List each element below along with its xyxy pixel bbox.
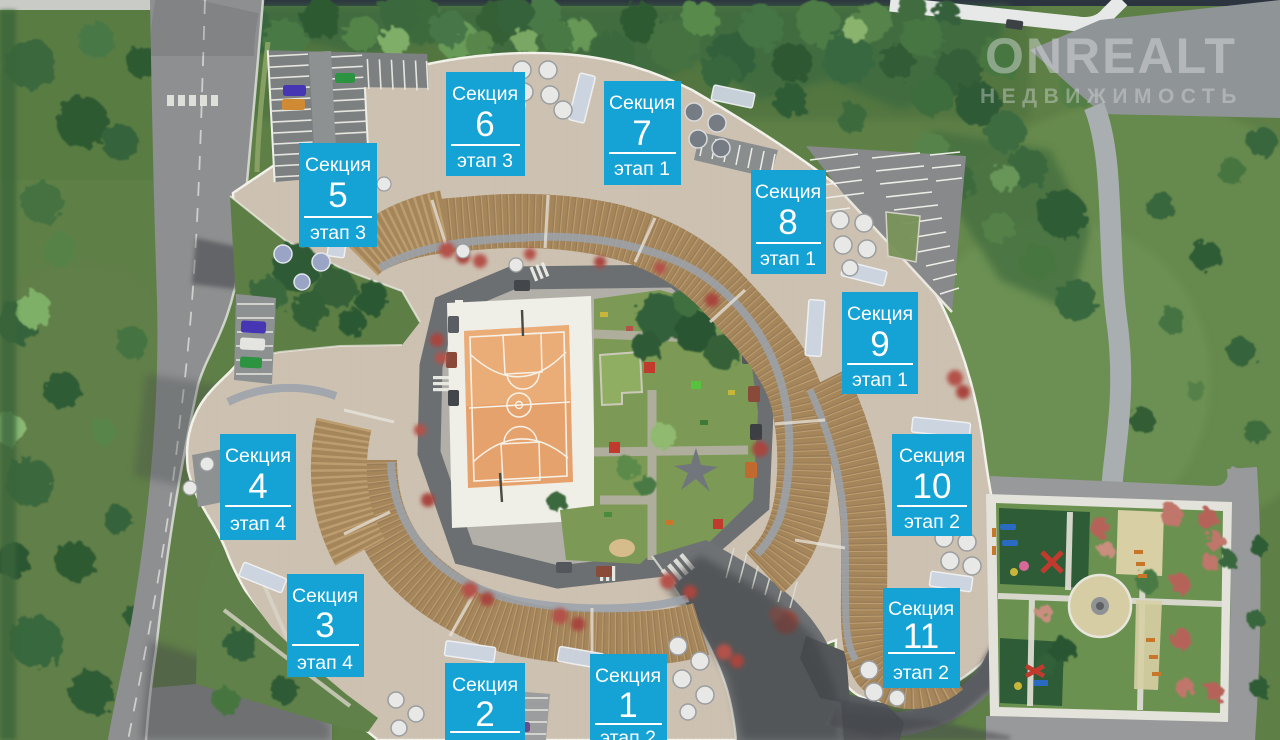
svg-text:этап 2: этап 2 [600, 727, 656, 740]
svg-text:НЕДВИЖИМОСТЬ: НЕДВИЖИМОСТЬ [980, 85, 1243, 108]
svg-text:11: 11 [903, 617, 939, 656]
svg-text:5: 5 [328, 176, 347, 215]
svg-text:Секция: Секция [847, 303, 913, 325]
svg-text:Секция: Секция [305, 154, 371, 176]
svg-text:Секция: Секция [452, 674, 518, 696]
svg-text:этап 4: этап 4 [297, 652, 353, 674]
svg-text:7: 7 [632, 114, 651, 153]
svg-text:этап 1: этап 1 [614, 158, 670, 180]
svg-text:этап 1: этап 1 [760, 248, 816, 270]
svg-text:6: 6 [475, 105, 494, 144]
svg-text:этап 4: этап 4 [230, 513, 286, 535]
svg-text:этап 2: этап 2 [893, 662, 949, 684]
svg-text:Секция: Секция [595, 665, 661, 687]
svg-text:1: 1 [618, 686, 637, 725]
svg-text:этап 1: этап 1 [852, 369, 908, 391]
svg-text:4: 4 [248, 467, 267, 506]
svg-text:10: 10 [913, 467, 952, 506]
svg-text:9: 9 [870, 325, 889, 364]
svg-text:Секция: Секция [755, 181, 821, 203]
svg-text:этап 3: этап 3 [457, 150, 513, 172]
svg-text:Секция: Секция [609, 92, 675, 114]
svg-text:8: 8 [778, 203, 797, 242]
svg-text:этап 3: этап 3 [310, 222, 366, 244]
svg-text:Секция: Секция [225, 445, 291, 467]
svg-text:3: 3 [315, 606, 334, 645]
svg-text:этап 2: этап 2 [904, 511, 960, 533]
svg-text:ONREALT: ONREALT [985, 28, 1237, 84]
svg-text:Секция: Секция [292, 585, 358, 607]
svg-text:Секция: Секция [899, 445, 965, 467]
svg-text:2: 2 [475, 695, 494, 734]
svg-text:Секция: Секция [452, 83, 518, 105]
